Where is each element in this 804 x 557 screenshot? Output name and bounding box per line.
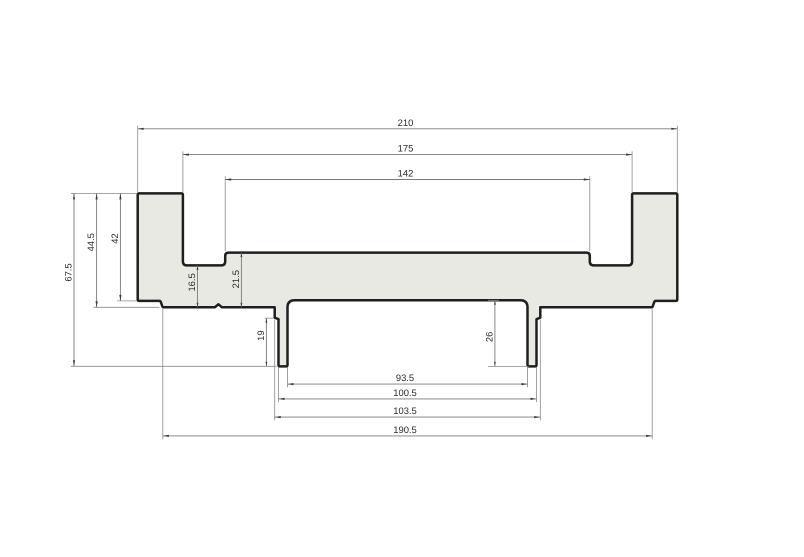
svg-text:67.5: 67.5 <box>62 263 73 281</box>
svg-text:175: 175 <box>398 143 414 154</box>
svg-text:42: 42 <box>109 233 120 243</box>
svg-text:44.5: 44.5 <box>85 233 96 251</box>
svg-text:21.5: 21.5 <box>230 270 241 288</box>
svg-text:19: 19 <box>255 330 266 340</box>
svg-text:100.5: 100.5 <box>393 387 416 398</box>
svg-text:210: 210 <box>398 117 414 128</box>
svg-text:93.5: 93.5 <box>396 372 414 383</box>
svg-text:26: 26 <box>483 332 494 342</box>
svg-text:142: 142 <box>398 168 414 179</box>
svg-text:103.5: 103.5 <box>393 405 416 416</box>
svg-text:16.5: 16.5 <box>186 273 197 291</box>
svg-text:190.5: 190.5 <box>393 424 416 435</box>
